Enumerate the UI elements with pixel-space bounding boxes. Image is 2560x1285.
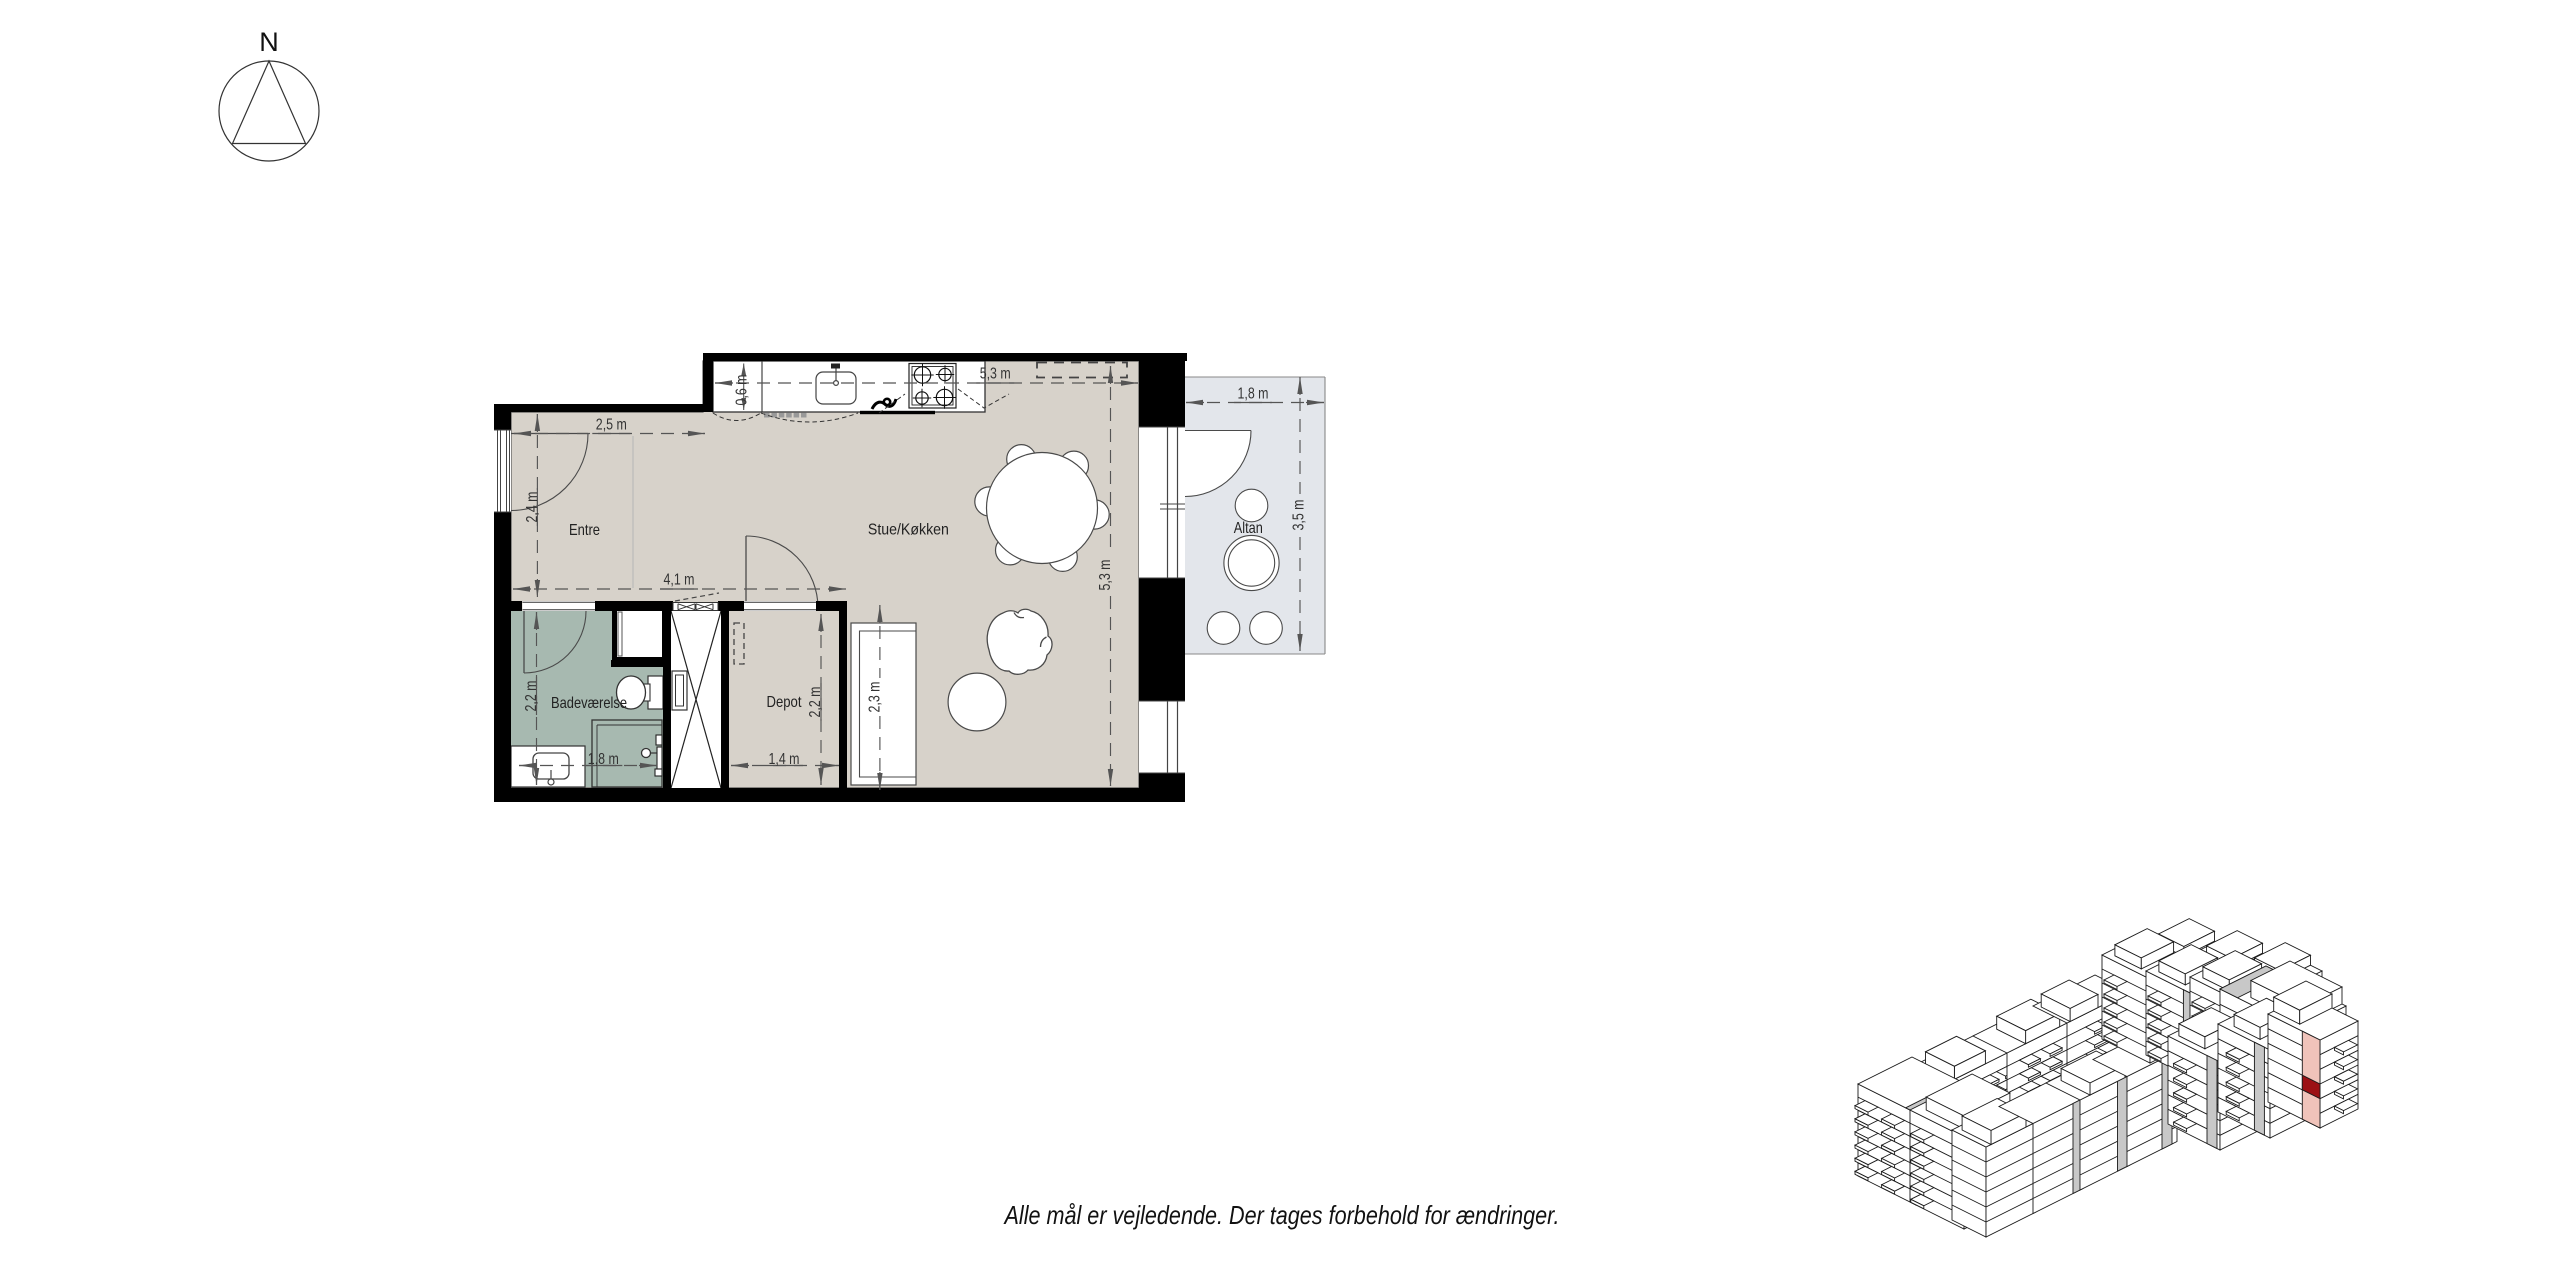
svg-text:3,5 m: 3,5 m (1291, 500, 1308, 531)
svg-text:1,8 m: 1,8 m (588, 751, 619, 768)
svg-text:4,1 m: 4,1 m (664, 572, 695, 589)
svg-text:2,5 m: 2,5 m (596, 417, 627, 434)
svg-text:Badeværelse: Badeværelse (551, 695, 627, 712)
svg-text:2,4 m: 2,4 m (524, 492, 541, 523)
svg-text:Depot: Depot (767, 694, 802, 711)
svg-text:Alle mål er vejledende. Der ta: Alle mål er vejledende. Der tages forbeh… (1003, 1200, 1560, 1230)
svg-text:5,3 m: 5,3 m (980, 366, 1011, 383)
svg-text:Stue/Køkken: Stue/Køkken (868, 522, 949, 539)
svg-text:Entre: Entre (569, 522, 600, 539)
svg-text:5,3 m: 5,3 m (1097, 560, 1114, 591)
svg-text:N: N (259, 27, 279, 57)
svg-text:2,2 m: 2,2 m (523, 681, 540, 712)
svg-text:2,2 m: 2,2 m (807, 687, 824, 718)
svg-text:Altan: Altan (1234, 520, 1263, 537)
svg-text:1,4 m: 1,4 m (769, 751, 800, 768)
svg-text:2,3 m: 2,3 m (867, 682, 884, 713)
svg-text:1,8 m: 1,8 m (1238, 386, 1269, 403)
svg-text:0,6 m: 0,6 m (733, 375, 750, 406)
